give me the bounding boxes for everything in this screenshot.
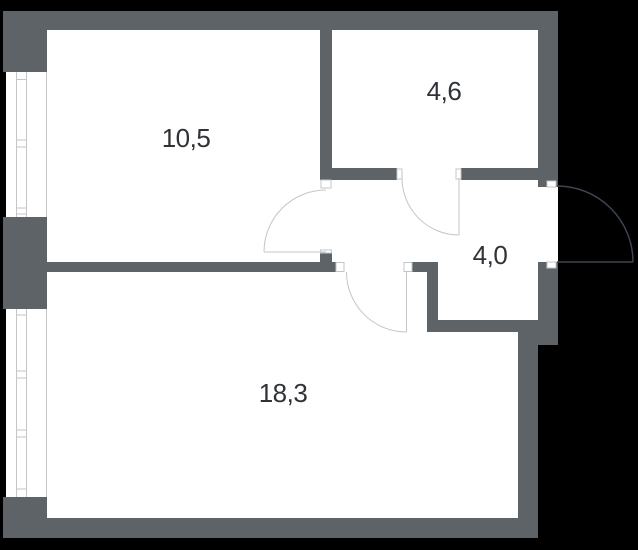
wall-top	[3, 11, 558, 30]
wall-door-stop-stub	[320, 253, 332, 262]
room-top-left-area-label: 10,5	[162, 123, 211, 153]
jamb-door2-right	[456, 169, 461, 179]
jamb-door1-top	[321, 180, 331, 188]
interior-floor	[47, 30, 538, 518]
room-top-right-area-label: 4,6	[427, 76, 462, 106]
wall-hall-bottom	[427, 320, 538, 332]
jamb-door3-right	[404, 263, 412, 272]
wall-right-lower	[518, 332, 538, 538]
floor-plan: 10,5 4,6 4,0 18,3	[0, 0, 638, 550]
wall-bottom	[3, 518, 538, 538]
jamb-door2-left	[397, 169, 402, 179]
floor-plan-canvas: 10,5 4,6 4,0 18,3	[0, 0, 638, 550]
wall-under-room2-left	[320, 168, 397, 180]
hall-area-label: 4,0	[473, 240, 508, 270]
entry-opening-floor	[538, 187, 558, 262]
jamb-door3-left	[336, 263, 344, 272]
floors	[6, 30, 558, 518]
room-bottom-area-label: 18,3	[259, 378, 308, 408]
wall-under-room2-right	[461, 168, 558, 180]
wall-right-mid	[538, 262, 558, 345]
wall-room1-hall-divider	[47, 262, 336, 272]
wall-left-top-block	[3, 11, 47, 72]
jamb-entry-bottom	[547, 262, 556, 268]
wall-hall-l-vertical	[427, 262, 438, 332]
wall-left-pier	[3, 217, 47, 309]
wall-right-upper	[538, 11, 558, 187]
jamb-entry-top	[547, 181, 556, 187]
wall-divider-top-rooms	[320, 30, 332, 180]
